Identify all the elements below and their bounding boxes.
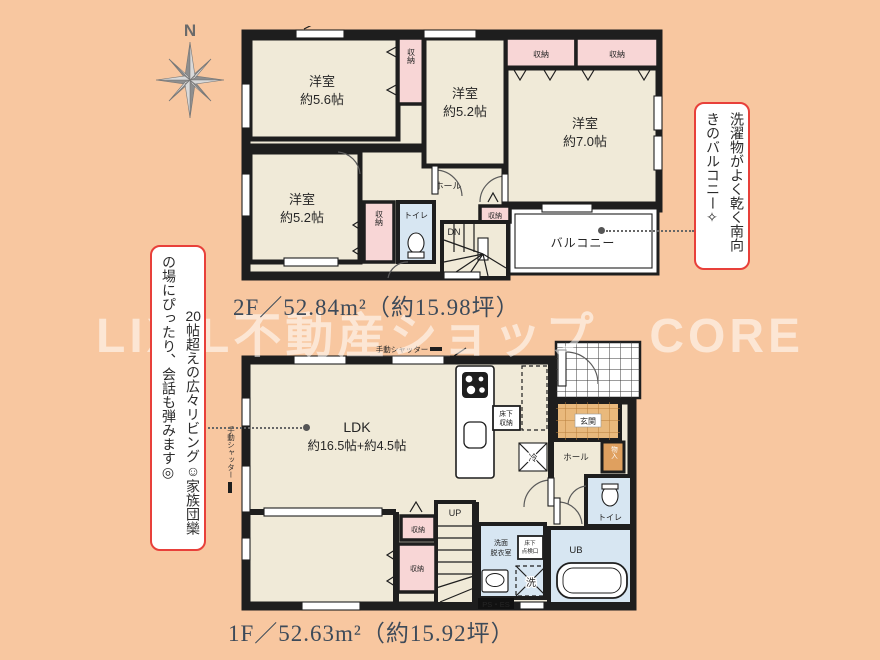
closet-label: 収納 <box>411 525 425 534</box>
ps-es-label: PS・ES <box>482 600 510 609</box>
hatch-l2: 点検口 <box>522 547 539 555</box>
closet-label: 収納 <box>407 47 416 65</box>
note-living: 20帖超えの広々リビング☺家族団欒の場にぴったり、会話も弾みます◎ <box>150 245 206 551</box>
note-living-body: 帖超えの広々リビング☺家族団欒の場にぴったり、会話も弾みます◎ <box>161 255 201 535</box>
note-balcony-text: 洗濯物がよく乾く南向きのバルコニー✧ <box>701 112 749 260</box>
toilet-2f: トイレ <box>398 202 434 262</box>
compass-north-label: N <box>184 21 196 40</box>
stairs-up-label: UP <box>449 508 462 518</box>
washroom-l1: 洗面 <box>494 538 508 547</box>
stairs-dn-label: DN <box>448 227 461 237</box>
underfloor-storage: 床下 収納 <box>493 406 520 430</box>
closet-label: 収納 <box>488 211 502 220</box>
stairs-up: UP <box>436 502 474 604</box>
closet-label: 収納 <box>375 209 384 227</box>
room-yoshitsu-5-2-bottom: 洋室 約5.2帖 <box>250 152 360 262</box>
balcony: バルコニー <box>509 208 658 274</box>
closet-label: 収納 <box>533 49 549 59</box>
leader-dot-balcony <box>598 227 605 234</box>
closet-stairs-2f: 収納 <box>480 206 510 222</box>
leader-line-living <box>208 427 306 429</box>
room-yoshitsu-7-0: 洋室 約7.0帖 <box>506 68 658 204</box>
closet-top-right-1: 収納 <box>506 38 576 68</box>
toilet-label: トイレ <box>404 211 428 220</box>
washroom-l2: 脱衣室 <box>491 548 512 557</box>
compass: N <box>150 14 230 123</box>
washbasin-icon <box>482 570 508 592</box>
floorplan-page: N バルコニー 洋室 約5.6帖 収納 <box>0 0 880 660</box>
genkan-label: 玄関 <box>580 416 596 426</box>
floor-2f-plan: バルコニー 洋室 約5.6帖 収納 洋室 約5.2帖 収納 収納 洋室 <box>238 26 670 297</box>
leader-dot-living <box>303 424 310 431</box>
note-living-number: 20 <box>185 309 201 323</box>
compass-icon: N <box>150 14 230 118</box>
fridge-space: 冷 <box>519 443 547 471</box>
room-name: 洋室 <box>309 74 335 89</box>
kitchen-counter <box>456 366 494 478</box>
room-size: 約7.0帖 <box>563 134 607 149</box>
monoire: 物入 <box>602 442 624 472</box>
stove-icon <box>462 372 488 398</box>
closet-label: 収納 <box>410 564 424 573</box>
room-size: 約5.2帖 <box>443 104 487 119</box>
underfloor-storage-l2: 収納 <box>499 418 513 427</box>
washroom: 洗面 脱衣室 床下 点検口 洗 <box>479 524 546 598</box>
closet-top-right-2: 収納 <box>576 38 658 68</box>
closet-1f-1: 収納 <box>401 516 435 540</box>
closet-label: 収納 <box>609 49 625 59</box>
room-name: 洋室 <box>572 116 598 131</box>
unit-bath: UB <box>549 528 632 604</box>
floor-1f-plan: 玄関 物入 ホール LDK 約16.5帖+約4.5帖 床下 収納 <box>224 336 650 629</box>
ps-es: PS・ES <box>478 598 514 609</box>
ldk-name: LDK <box>343 419 371 435</box>
hatch-l1: 床下 <box>524 539 536 547</box>
toilet-icon <box>408 233 424 258</box>
shutter-label-left: 手動シャッター <box>226 425 235 493</box>
toilet-label: トイレ <box>598 513 622 522</box>
underfloor-storage-l1: 床下 <box>499 409 513 418</box>
floor-2f-caption: 2F／52.84m²（約15.98坪） <box>233 288 520 322</box>
genkan: 玄関 <box>556 402 620 440</box>
note-balcony: 洗濯物がよく乾く南向きのバルコニー✧ <box>694 102 750 270</box>
toilet-icon <box>602 484 618 506</box>
bathtub-icon <box>557 563 627 598</box>
leader-line-balcony <box>606 230 694 232</box>
stairs-down: DN <box>442 222 508 278</box>
room-yoshitsu-5-6: 洋室 約5.6帖 <box>250 38 398 139</box>
room-size: 約5.6帖 <box>300 92 344 107</box>
ub-label: UB <box>569 545 582 556</box>
shutter-left-text: 手動シャッター <box>226 425 235 479</box>
room-name: 洋室 <box>452 86 478 101</box>
ldk-size: 約16.5帖+約4.5帖 <box>307 438 406 453</box>
washer-label: 洗 <box>526 577 536 589</box>
room-size: 約5.2帖 <box>280 210 324 225</box>
floor-1f-caption: 1F／52.63m²（約15.92坪） <box>228 614 515 648</box>
sink-icon <box>464 422 486 448</box>
room-name: 洋室 <box>289 192 315 207</box>
underfloor-hatch: 床下 点検口 <box>518 536 543 559</box>
toilet-1f: トイレ <box>586 476 632 526</box>
room-yoshitsu-5-2-top: 洋室 約5.2帖 <box>424 38 506 166</box>
hall-1f-label: ホール <box>563 452 589 462</box>
fridge-label: 冷 <box>528 452 537 463</box>
note-living-text: 20帖超えの広々リビング☺家族団欒の場にぴったり、会話も弾みます◎ <box>157 255 205 541</box>
balcony-label: バルコニー <box>551 236 616 250</box>
